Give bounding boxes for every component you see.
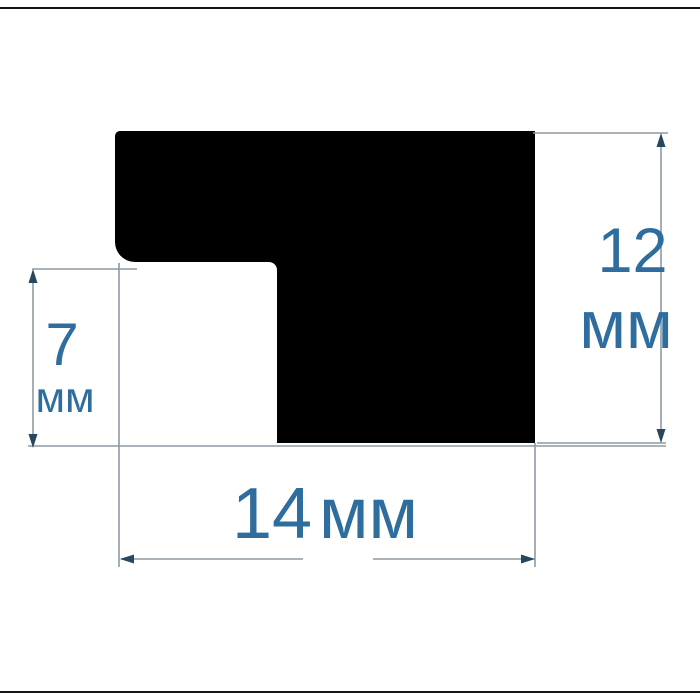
height-unit-text: мм xyxy=(579,291,673,359)
top-border-line xyxy=(0,7,700,9)
inner-height-value-text: 7 xyxy=(45,315,78,375)
inner-height-unit-text: мм xyxy=(35,377,94,420)
width-dimension-label: 14 мм xyxy=(150,478,500,560)
bottom-border-line xyxy=(0,691,700,693)
arrow-left-icon xyxy=(120,555,134,564)
profile-shape xyxy=(115,131,535,443)
height-dimension-value: 12 xyxy=(585,213,680,289)
arrow-down-icon xyxy=(657,429,666,443)
height-value-text: 12 xyxy=(597,220,667,283)
width-unit-text: мм xyxy=(319,478,418,550)
width-value-text: 14 xyxy=(232,478,312,550)
technical-drawing-canvas: 12 мм 7 мм 14 мм xyxy=(0,0,700,700)
arrow-right-icon xyxy=(521,555,535,564)
inner-height-dimension-unit: мм xyxy=(25,372,105,424)
height-dimension-unit: мм xyxy=(572,284,680,366)
arrow-up-icon xyxy=(29,269,38,283)
arrow-up-icon xyxy=(657,133,666,147)
